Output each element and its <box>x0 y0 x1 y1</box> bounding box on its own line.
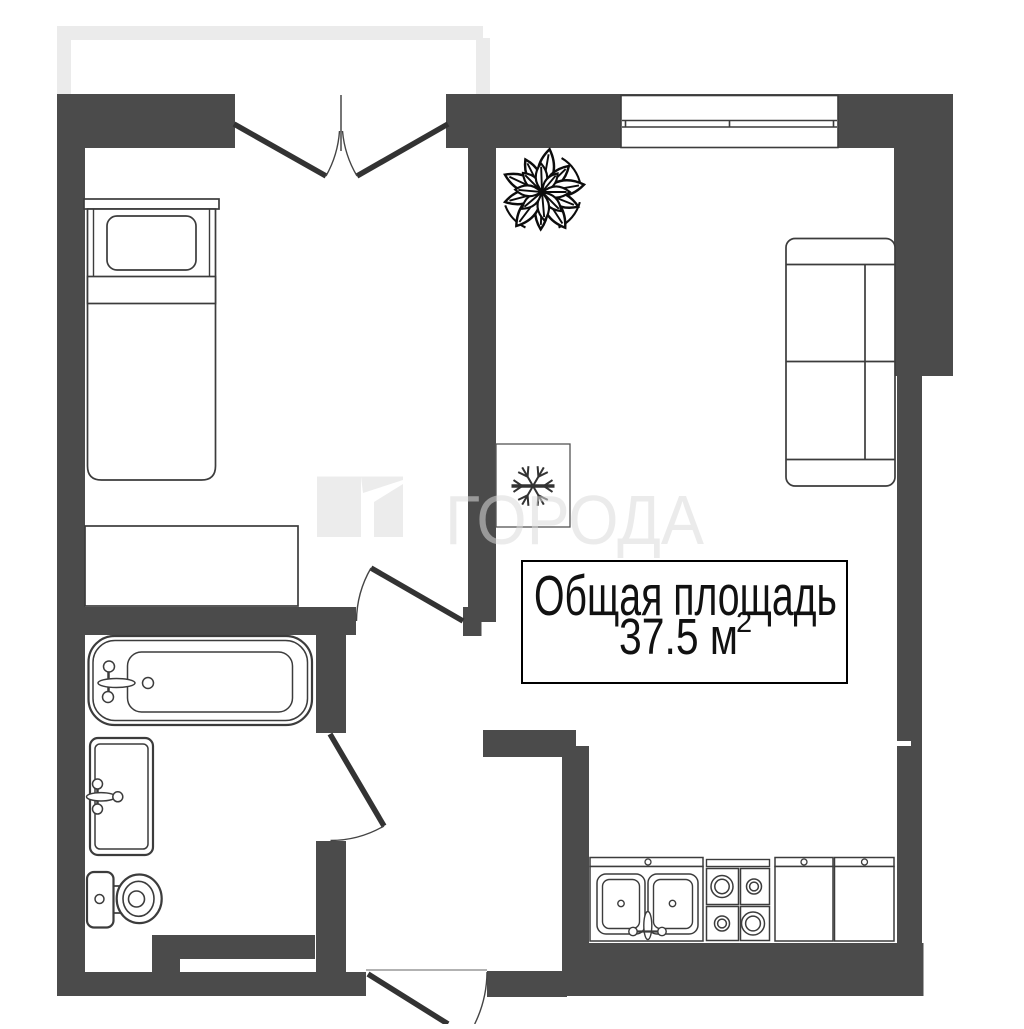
svg-text:2: 2 <box>736 607 752 639</box>
svg-text:37.5 м: 37.5 м <box>619 608 738 665</box>
svg-text:ГОРОДА: ГОРОДА <box>445 481 704 559</box>
